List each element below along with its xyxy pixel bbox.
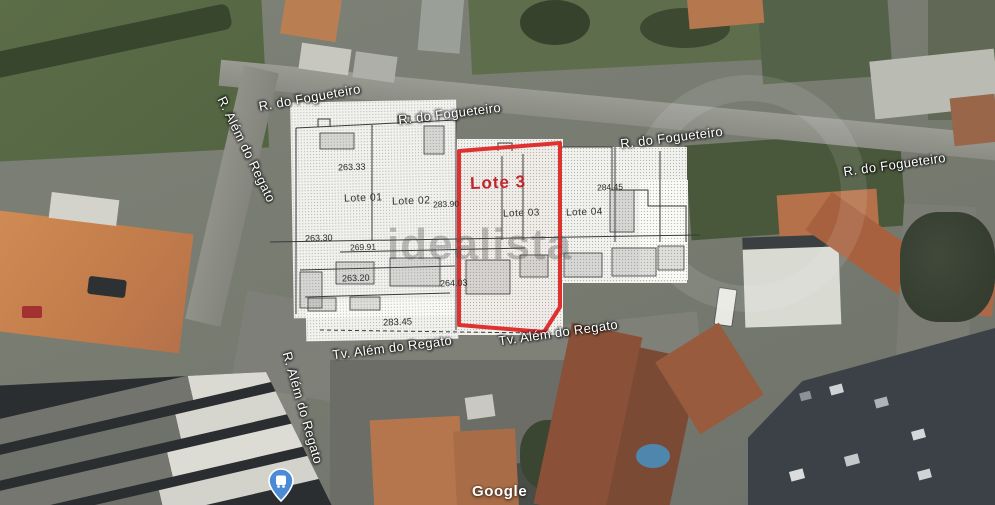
highlight-lot-outline — [459, 143, 560, 332]
satellite-map[interactable]: 263.33 Lote 01 Lote 02 283.90 Lote 3 Lot… — [0, 0, 995, 505]
lot-label-02: Lote 02 — [392, 194, 431, 207]
measurement: 284.45 — [597, 182, 623, 193]
transit-stop-pin-icon[interactable] — [268, 468, 294, 502]
lot-label-01: Lote 01 — [344, 191, 383, 204]
measurement: 263.33 — [338, 162, 366, 173]
measurement: 269.91 — [350, 242, 376, 253]
measurement: 283.45 — [383, 316, 412, 328]
measurement: 263.20 — [342, 273, 370, 284]
lot-label-04: Lote 04 — [566, 206, 603, 218]
measurement: 283.90 — [433, 199, 459, 210]
plan-linework — [0, 0, 995, 505]
measurement: 263.30 — [305, 233, 333, 244]
measurement: 264.03 — [440, 278, 468, 289]
lot-label-03: Lote 03 — [503, 207, 540, 219]
highlight-lot-label: Lote 3 — [470, 172, 527, 194]
google-attribution: Google — [472, 483, 527, 500]
